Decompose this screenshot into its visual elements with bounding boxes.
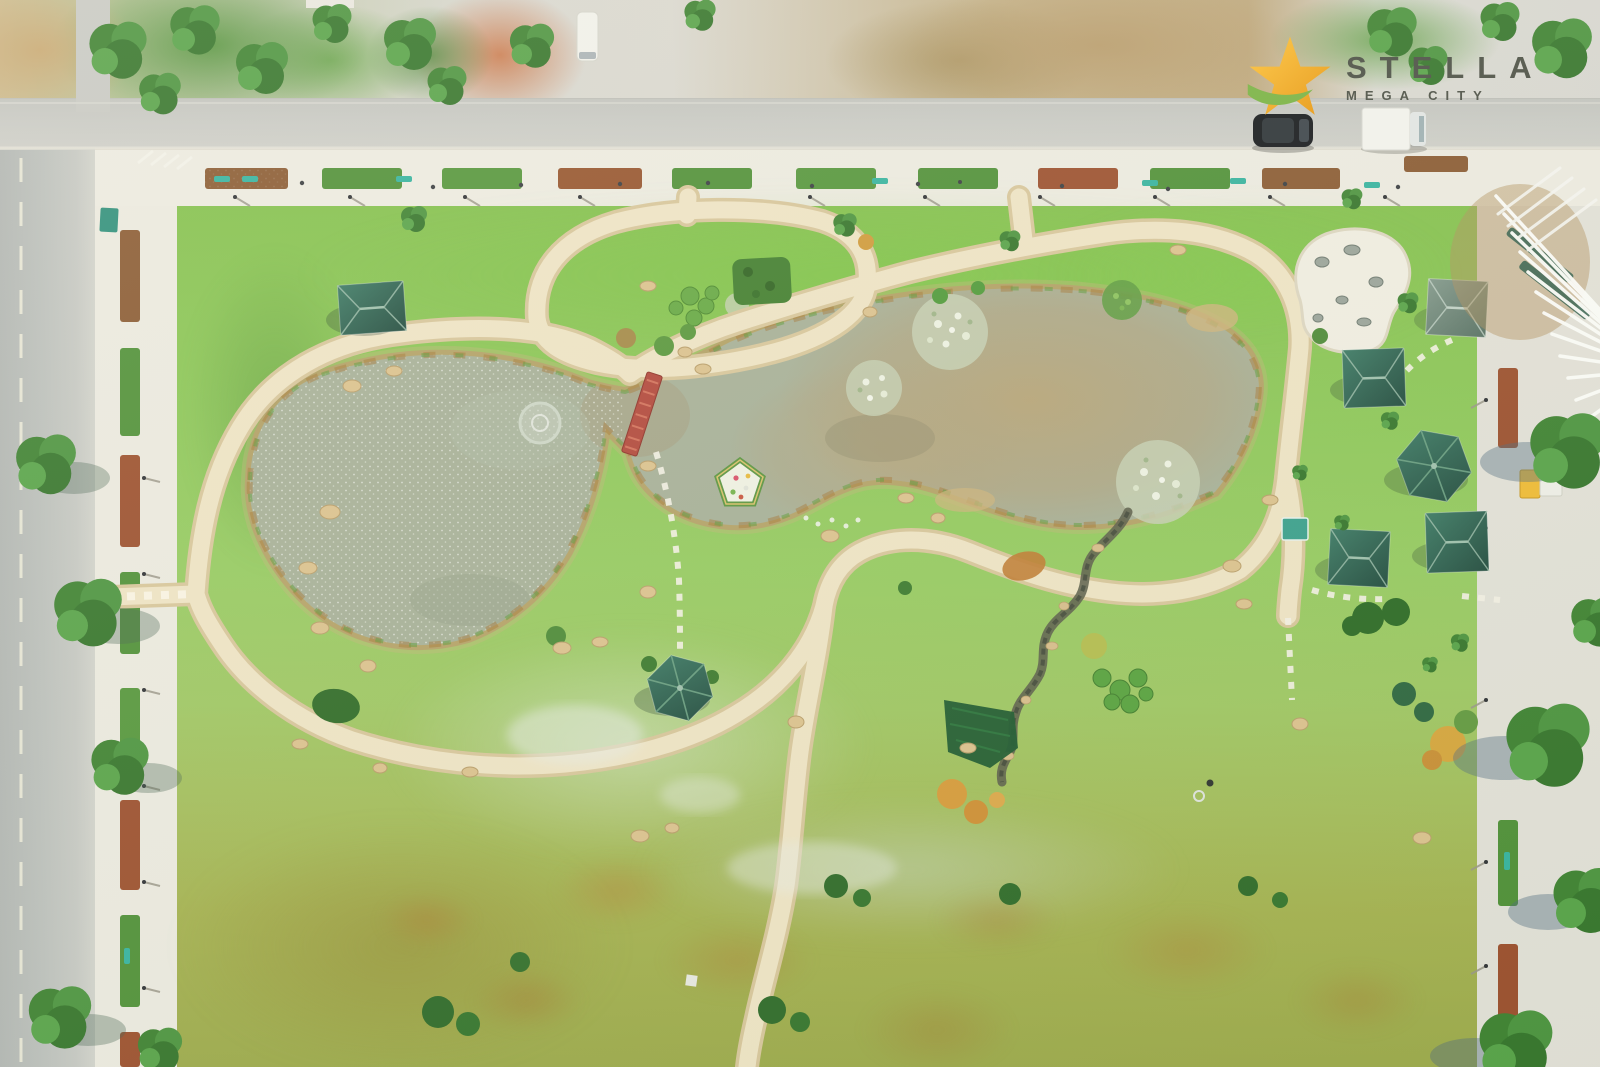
worn-sand-patch-2 [727,842,897,894]
top-planters [205,156,1468,189]
pavilion-e2 [1328,528,1391,587]
crosswalk-stripes [138,151,192,169]
pavilion-e3 [1425,511,1489,573]
rock-garden-shrub [1312,328,1328,344]
worn-sand-patch [507,705,643,765]
worn-sand-patch-3 [660,777,740,813]
topiary-cluster-right [1093,669,1153,713]
small-white-sign [685,974,697,986]
teal-canopy-small [1282,518,1308,540]
star-logo-icon [1244,33,1336,121]
white-canopy-structure [1450,168,1600,422]
hedge-cluster-se [1342,598,1410,636]
cyclist [1194,780,1214,802]
teal-shade-structure [99,208,118,233]
dry-stream [1001,512,1128,782]
aerial-park-photo: STELLA MEGA CITY [0,0,1600,1067]
sandy-shore-patch-2 [935,488,995,512]
fountain-ring [520,403,560,443]
brand-logo: STELLA MEGA CITY [1244,32,1544,122]
scene-drawing [0,0,1600,1067]
sandy-shore-patch [1186,304,1238,332]
left-planters [120,230,140,1067]
white-van [577,12,598,61]
pavilion-e1 [1342,348,1406,408]
logo-title: STELLA [1346,52,1545,83]
dense-shrub-bed [732,257,792,306]
logo-subtitle: MEGA CITY [1346,88,1545,103]
pavilion-nw [337,281,406,335]
